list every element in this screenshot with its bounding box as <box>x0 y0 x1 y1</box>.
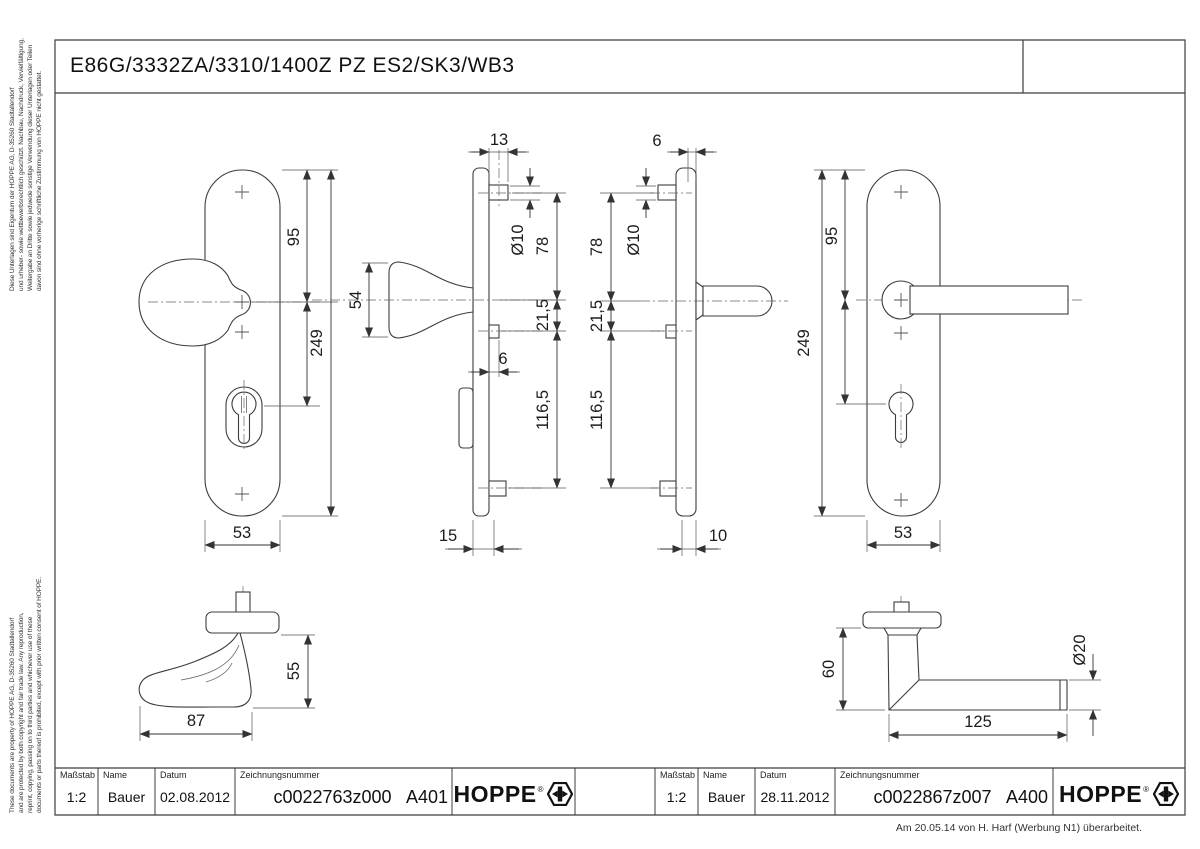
disclaimer-english: These documents are property of HOPPE AG… <box>8 531 44 813</box>
dim-label: 54 <box>347 291 365 309</box>
date-value: 02.08.2012 <box>155 789 235 805</box>
revision-note: Am 20.05.14 von H. Harf (Werbung N1) übe… <box>880 822 1142 834</box>
disclaimer-german: Diese Unterlagen sind Eigentum der HOPPE… <box>8 9 44 291</box>
drawing-number-label: Zeichnungsnummer <box>840 770 920 780</box>
dim-label: 53 <box>233 524 251 542</box>
name-value: Bauer <box>98 789 155 805</box>
plate-profile <box>676 168 696 516</box>
plate-profile <box>473 168 489 516</box>
name-label: Name <box>703 770 727 780</box>
registered-mark: ® <box>1143 785 1149 794</box>
dim-label: 10 <box>709 527 727 545</box>
scale-value: 1:2 <box>55 789 98 805</box>
dim-87: 87 <box>140 706 252 741</box>
screw-boss-bottom <box>489 481 506 496</box>
dim-10: 10 <box>657 520 727 556</box>
dim-label: 53 <box>894 524 912 542</box>
date-label: Datum <box>760 770 787 780</box>
scale-label: Maßstab <box>60 770 95 780</box>
lever-rose <box>863 612 941 628</box>
dim-label: 6 <box>498 350 507 368</box>
drawing-canvas: 95 249 53 <box>0 0 1200 849</box>
dim-label: 116,5 <box>534 390 552 430</box>
hoppe-hexagon-icon <box>547 782 573 806</box>
dim-dia20: Ø20 <box>1069 634 1101 736</box>
disclaimer-line: und urheber- sowie wettbewerbsrechtlich … <box>17 9 26 291</box>
dim-78: 78 <box>588 193 654 301</box>
dim-label: 125 <box>964 713 992 731</box>
dim-label: 55 <box>285 662 303 680</box>
dim-label: 95 <box>285 228 303 246</box>
dim-label: 78 <box>534 237 552 255</box>
view-knob-handle: 55 87 <box>139 586 315 741</box>
drawing-number-label: Zeichnungsnummer <box>240 770 320 780</box>
name-label: Name <box>103 770 127 780</box>
dim-label: 116,5 <box>588 390 606 430</box>
view-knob-plate-front: 95 249 53 <box>139 170 338 552</box>
dim-60: 60 <box>820 628 885 710</box>
dim-label: Ø20 <box>1071 634 1089 665</box>
dim-label: 78 <box>588 238 606 256</box>
dim-label: 13 <box>490 131 508 149</box>
disclaimer-line: and are protected by both copyright and … <box>17 531 26 813</box>
lever-body <box>888 635 1067 710</box>
spindle <box>236 592 250 613</box>
screw-boss-bottom <box>660 481 676 496</box>
dim-label: Ø10 <box>509 224 527 255</box>
dim-116-5: 116,5 <box>588 331 658 488</box>
backplate-outline <box>867 170 940 516</box>
screw-boss-mid <box>489 325 499 338</box>
disclaimer-line: Diese Unterlagen sind Eigentum der HOPPE… <box>8 9 17 291</box>
view-lever-handle: 60 Ø20 125 <box>820 596 1101 742</box>
dim-label: 21,5 <box>534 299 552 331</box>
disclaimer-line: davon sind ohne vorherige schriftliche Z… <box>35 9 44 291</box>
dim-label: 60 <box>820 660 838 678</box>
hoppe-logo: HOPPE® <box>452 774 575 814</box>
hoppe-hexagon-icon <box>1153 782 1179 806</box>
cylinder-boss <box>459 388 473 448</box>
knob-body <box>139 633 251 707</box>
view-lever-plate-side: 6 Ø10 78 21,5 116,5 <box>588 132 788 556</box>
dim-21-5: 21,5 <box>588 300 664 332</box>
dim-label: 249 <box>795 329 813 357</box>
dim-249: 249 <box>282 170 338 516</box>
disclaimer-line: reprint, copying, passing on to third pa… <box>26 531 35 813</box>
scale-value: 1:2 <box>655 789 698 805</box>
drawing-number-value: c0022763z000 <box>245 787 420 808</box>
hoppe-logo: HOPPE® <box>1053 774 1185 814</box>
dim-116-5: 116,5 <box>508 331 566 488</box>
dim-label: Ø10 <box>625 224 643 255</box>
date-label: Datum <box>160 770 187 780</box>
disclaimer-line: These documents are property of HOPPE AG… <box>8 531 17 813</box>
dim-53: 53 <box>867 520 940 552</box>
dim-label: 15 <box>439 527 457 545</box>
screw-boss-mid <box>666 325 676 338</box>
view-knob-plate-side: 13 54 Ø10 78 21,5 <box>312 131 566 556</box>
name-value: Bauer <box>698 789 755 805</box>
backplate-outline <box>205 170 280 516</box>
dim-label: 6 <box>652 132 661 150</box>
disclaimer-line: documents or parts thereof is prohibited… <box>35 531 44 813</box>
registered-mark: ® <box>538 785 544 794</box>
sheet-number: A400 <box>1000 787 1048 808</box>
screw-boss-top <box>658 185 676 200</box>
brand-wordmark: HOPPE <box>1059 781 1142 808</box>
disclaimer-line: Weitergabe an Dritte sowie jedwede sonst… <box>26 9 35 291</box>
page-title: E86G/3332ZA/3310/1400Z PZ ES2/SK3/WB3 <box>70 54 515 78</box>
date-value: 28.11.2012 <box>755 789 835 805</box>
dim-label: 21,5 <box>588 300 606 332</box>
dim-label: 249 <box>308 329 326 357</box>
dim-125: 125 <box>889 713 1067 742</box>
sheet-number: A401 <box>400 787 448 808</box>
scale-label: Maßstab <box>660 770 695 780</box>
spindle <box>894 602 909 613</box>
dim-21-5: 21,5 <box>501 299 566 331</box>
dim-249: 249 <box>795 170 865 516</box>
dim-dia10: Ø10 <box>625 168 656 256</box>
rose-base <box>884 628 921 635</box>
view-lever-plate-front: 95 249 53 <box>795 170 1082 552</box>
dim-label: 95 <box>823 227 841 245</box>
drawing-sheet: 95 249 53 <box>0 0 1200 849</box>
dim-55: 55 <box>253 635 315 708</box>
knob-rose <box>206 612 279 633</box>
dim-15: 15 <box>439 520 522 556</box>
brand-wordmark: HOPPE <box>454 781 537 808</box>
dim-label: 87 <box>187 712 205 730</box>
lever-grip <box>910 286 1068 314</box>
drawing-number-value: c0022867z007 <box>845 787 1020 808</box>
dim-53: 53 <box>205 520 280 552</box>
screw-boss-top <box>489 185 508 200</box>
